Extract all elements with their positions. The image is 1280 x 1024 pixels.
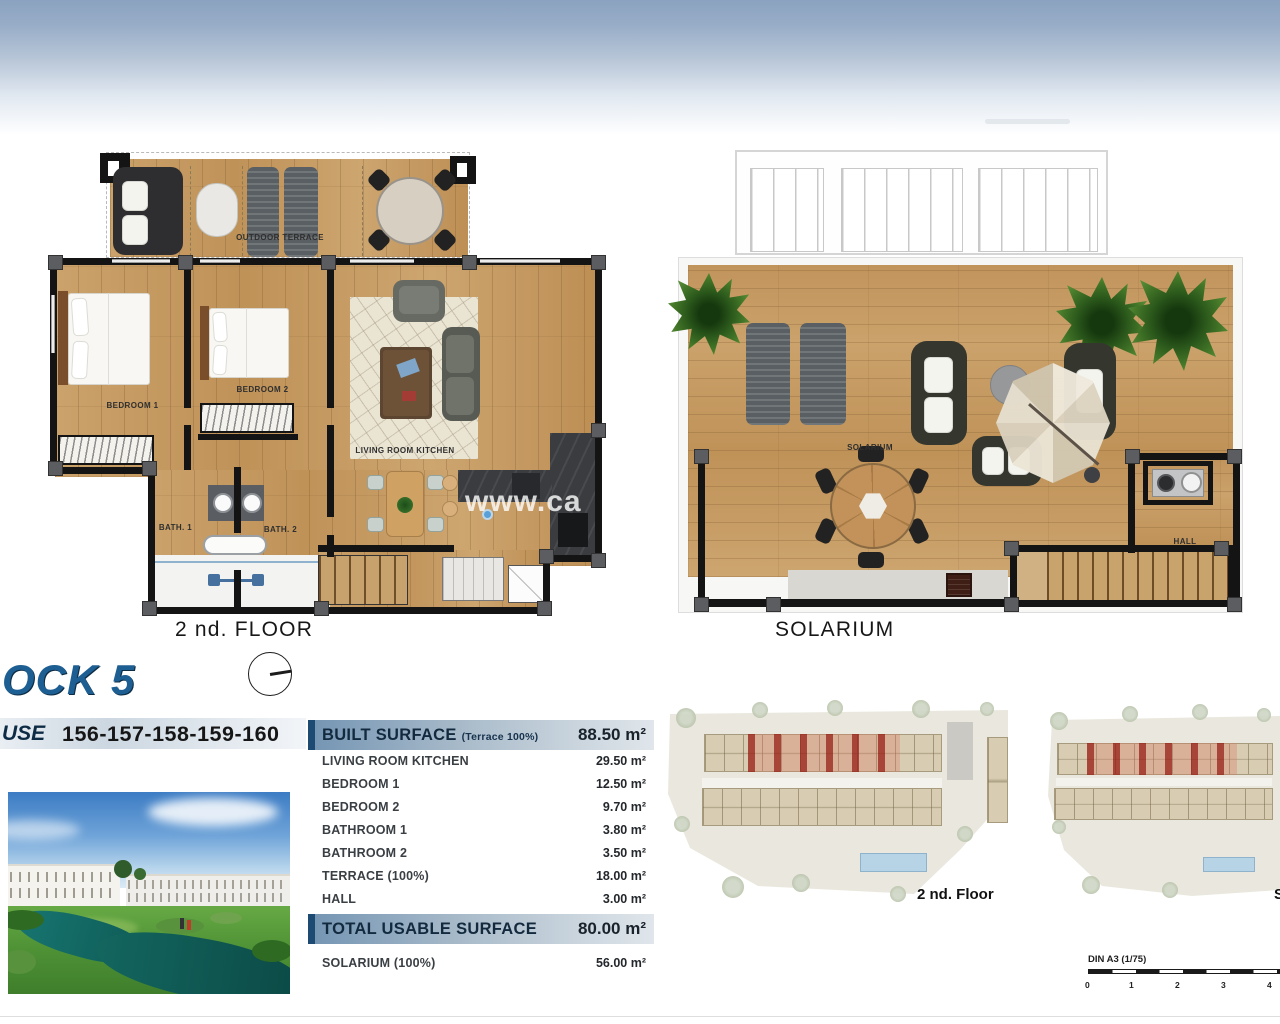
site-road: [1056, 778, 1272, 786]
total-surface-header: TOTAL USABLE SURFACE 80.00 m²: [308, 914, 654, 944]
total-surface-value: 80.00 m²: [578, 919, 646, 939]
pillow: [212, 312, 228, 343]
wall-segment: [50, 258, 57, 474]
terrace-divider-line: [190, 166, 191, 256]
room-label-living: LIVING ROOM KITCHEN: [340, 446, 470, 455]
room-label-bath2: BATH. 2: [258, 525, 303, 534]
pillow: [71, 297, 90, 336]
swimming-pool: [860, 853, 927, 872]
plan-title-solarium: SOLARIUM: [775, 618, 894, 642]
site-road: [702, 778, 942, 788]
kitchenette-sink: [1181, 472, 1202, 493]
wall-segment: [234, 570, 241, 607]
terrace-side-table: [196, 183, 238, 237]
highlighted-units: [748, 734, 900, 772]
parasol-base: [1084, 467, 1100, 483]
scale-bar-label: DIN A3 (1/75): [1088, 954, 1146, 965]
sheet-bottom-hairline: [0, 1016, 1280, 1017]
tree: [752, 702, 768, 718]
window: [480, 259, 560, 263]
wall-pillar: [591, 255, 606, 270]
scale-tick: 2: [1175, 980, 1180, 990]
bar-stool: [442, 475, 458, 491]
wall-pillar: [142, 461, 157, 476]
wall-pillar: [1227, 449, 1242, 464]
wall-pillar: [48, 255, 63, 270]
site-plan-label: 2 nd. Floor: [917, 886, 994, 903]
pergola-slats: [750, 168, 824, 252]
tree: [827, 700, 843, 716]
highlighted-units: [1087, 743, 1237, 775]
scale-tick: 1: [1129, 980, 1134, 990]
photo-building-windows: [10, 888, 118, 898]
window: [51, 295, 55, 353]
building-row: [1054, 788, 1273, 820]
wall-segment: [184, 258, 191, 408]
pillow: [212, 345, 228, 376]
wall-pillar: [539, 549, 554, 564]
sun-lounger: [247, 167, 279, 257]
site-plan-label: S: [1274, 886, 1280, 903]
table-row-value: 18.00 m²: [596, 869, 646, 883]
built-surface-title: BUILT SURFACE: [322, 726, 457, 744]
terrace-divider-line: [242, 166, 243, 256]
table-row-label: LIVING ROOM KITCHEN: [322, 754, 469, 768]
burner: [1157, 474, 1175, 492]
armchair-cushion: [399, 286, 439, 314]
built-surface-note: (Terrace 100%): [462, 731, 539, 743]
tree: [792, 874, 810, 892]
scale-tick: 0: [1085, 980, 1090, 990]
wall-pillar: [48, 461, 63, 476]
table-row-label: BATHROOM 1: [322, 823, 407, 837]
pergola-slats: [841, 168, 963, 252]
table-row-label: SOLARIUM (100%): [322, 956, 435, 970]
terrace-round-table: [376, 177, 444, 245]
wall-segment: [234, 467, 241, 533]
photo-bush: [210, 912, 242, 924]
window: [200, 259, 240, 263]
photo-person: [180, 918, 184, 929]
tree: [1122, 706, 1138, 722]
staircase: [318, 555, 408, 605]
terrace-label: OUTDOOR TERRACE: [200, 233, 360, 242]
scale-tick: 4: [1267, 980, 1272, 990]
tree: [722, 876, 744, 898]
window: [350, 259, 414, 263]
dining-chair: [427, 517, 444, 532]
sun-lounger: [800, 323, 846, 425]
photo-palm-tree: [134, 868, 146, 880]
wall-segment: [327, 467, 334, 517]
closet: [508, 565, 544, 603]
wall-segment: [327, 258, 334, 408]
header-accent-bar: [308, 720, 315, 750]
table-row-value: 3.80 m²: [603, 823, 646, 837]
table-row-value: 29.50 m²: [596, 754, 646, 768]
wall-segment: [768, 599, 1016, 607]
sofa-seat: [446, 335, 474, 373]
wall-pillar: [766, 597, 781, 612]
bath-sink: [213, 493, 233, 513]
photo-person: [187, 920, 191, 930]
house-numbers: 156-157-158-159-160: [62, 722, 280, 747]
wall-corner-inner: [457, 163, 467, 177]
table-row-label: BATHROOM 2: [322, 846, 407, 860]
tree: [1052, 820, 1066, 834]
table-row-label: BEDROOM 2: [322, 800, 400, 814]
block-title: OCK 5: [2, 656, 135, 704]
site-plan-solarium: S: [1042, 700, 1280, 912]
concrete-walkway: [788, 570, 1008, 602]
wall-pillar: [694, 597, 709, 612]
tree: [980, 702, 994, 716]
pergola-slats: [978, 168, 1098, 252]
house-label: USE: [2, 722, 45, 746]
wall-pillar: [591, 423, 606, 438]
sky-gradient-band: [0, 0, 1280, 135]
tree: [674, 816, 690, 832]
table-row-label: TERRACE (100%): [322, 869, 429, 883]
wall-segment: [327, 425, 334, 470]
wall-segment: [698, 453, 705, 607]
bar-stool: [442, 501, 458, 517]
wall-pillar: [314, 601, 329, 616]
table-row-label: BEDROOM 1: [322, 777, 400, 791]
duvet-fold: [246, 308, 247, 378]
tree: [890, 886, 906, 902]
wall-segment: [148, 467, 155, 614]
sofa-cushion: [122, 181, 148, 211]
shower-blue-line: [154, 561, 326, 563]
wall-pillar: [1004, 541, 1019, 556]
solarium-plan: SOLARIUM HALL SOLARIUM: [660, 145, 1280, 660]
total-surface-label: TOTAL USABLE SURFACE: [322, 920, 537, 939]
built-surface-header: BUILT SURFACE (Terrace 100%) 88.50 m²: [308, 720, 654, 750]
tree: [1257, 708, 1271, 722]
header-accent-bar: [308, 914, 315, 944]
built-surface-value: 88.50 m²: [578, 725, 646, 745]
sofa-seat: [446, 377, 474, 415]
bed-headboard: [200, 306, 209, 380]
wall-pillar: [591, 553, 606, 568]
surface-table: BUILT SURFACE (Terrace 100%) 88.50 m² LI…: [308, 718, 654, 980]
photo-bush: [252, 940, 290, 962]
sofa-cushion: [924, 357, 953, 393]
bathtub: [203, 535, 267, 555]
tree: [957, 826, 973, 842]
scale-tick: 3: [1221, 980, 1226, 990]
wall-pillar: [321, 255, 336, 270]
wardrobe: [200, 403, 294, 433]
dining-chair: [367, 517, 384, 532]
building-row: [702, 788, 942, 826]
wall-pillar: [462, 255, 477, 270]
staircase: [1047, 552, 1228, 600]
table-row-value: 3.00 m²: [603, 892, 646, 906]
faint-watermark: [985, 119, 1070, 124]
wall-pillar: [142, 601, 157, 616]
wall-segment: [148, 607, 550, 614]
pillow: [71, 341, 89, 380]
wall-pillar: [694, 449, 709, 464]
photo-building: [8, 864, 120, 906]
stairs-hatch: [442, 557, 504, 601]
wall-pillar: [1125, 449, 1140, 464]
sofa-cushion: [122, 215, 148, 245]
tree: [912, 700, 930, 718]
plan-title-2nd-floor: 2 nd. FLOOR: [175, 618, 313, 642]
shower-knob: [208, 574, 220, 586]
wall-pillar: [537, 601, 552, 616]
wall-segment: [318, 545, 454, 552]
tree: [676, 708, 696, 728]
stairs-landing: [1017, 552, 1047, 600]
wall-pillar: [1004, 597, 1019, 612]
wall-segment: [595, 258, 602, 562]
scale-bar-rule: [1088, 969, 1280, 974]
wall-segment: [50, 467, 157, 474]
coffee-table-top: [383, 350, 429, 416]
plan-sheet: OUTDOOR TERRACE: [0, 0, 1280, 1024]
table-row-label: HALL: [322, 892, 356, 906]
photo-building-windows: [128, 880, 288, 889]
building-block: [987, 737, 1008, 823]
tree: [1082, 876, 1100, 894]
window: [112, 259, 170, 263]
duvet-fold: [108, 293, 109, 385]
sofa-cushion: [924, 397, 953, 433]
terrace-divider-line: [362, 166, 363, 256]
wall-segment: [184, 425, 191, 470]
golf-course-photo: [8, 792, 290, 994]
tree: [1162, 882, 1178, 898]
wall-segment: [1128, 453, 1135, 553]
floor-plan-2nd: OUTDOOR TERRACE: [50, 145, 675, 660]
wall-pillar: [1227, 597, 1242, 612]
table-row-value: 3.50 m²: [603, 846, 646, 860]
tree: [1050, 712, 1068, 730]
wall-segment: [1128, 453, 1240, 460]
table-row-value: 9.70 m²: [603, 800, 646, 814]
wall-pillar: [1214, 541, 1229, 556]
dining-chair: [367, 475, 384, 490]
built-surface-label: BUILT SURFACE (Terrace 100%): [322, 726, 538, 745]
wardrobe: [58, 435, 154, 465]
dining-chair: [858, 552, 884, 568]
wall-pillar: [178, 255, 193, 270]
photo-palm-tree: [114, 860, 132, 878]
site-plan-2nd-floor: 2 nd. Floor: [662, 698, 1014, 910]
shower-knob: [252, 574, 264, 586]
wall-segment: [198, 434, 298, 440]
doormat: [946, 573, 972, 597]
room-label-bedroom1: BEDROOM 1: [90, 401, 175, 410]
table-decor: [402, 391, 416, 401]
sun-lounger: [746, 323, 790, 425]
scale-bar: DIN A3 (1/75) 0 1 2 3 4: [1085, 950, 1280, 998]
bed-headboard: [58, 291, 68, 385]
tree: [1192, 704, 1208, 720]
bath-sink: [242, 493, 262, 513]
photo-building-windows: [128, 893, 288, 902]
room-label-hall: HALL: [1165, 537, 1205, 546]
photo-cloud: [148, 798, 278, 826]
room-label-bath1: BATH. 1: [153, 523, 198, 532]
room-label-bedroom2: BEDROOM 2: [220, 385, 305, 394]
photo-watermark: www.ca: [465, 485, 582, 519]
table-row-value: 12.50 m²: [596, 777, 646, 791]
sofa-cushion: [982, 447, 1004, 475]
sun-lounger: [284, 167, 318, 257]
table-plant: [397, 497, 413, 513]
room-label-solarium: SOLARIUM: [810, 443, 930, 452]
wall-segment: [1233, 453, 1240, 607]
site-gray-block: [947, 722, 973, 780]
photo-building-windows: [10, 872, 118, 882]
swimming-pool: [1203, 857, 1255, 872]
table-row-value: 56.00 m²: [596, 956, 646, 970]
